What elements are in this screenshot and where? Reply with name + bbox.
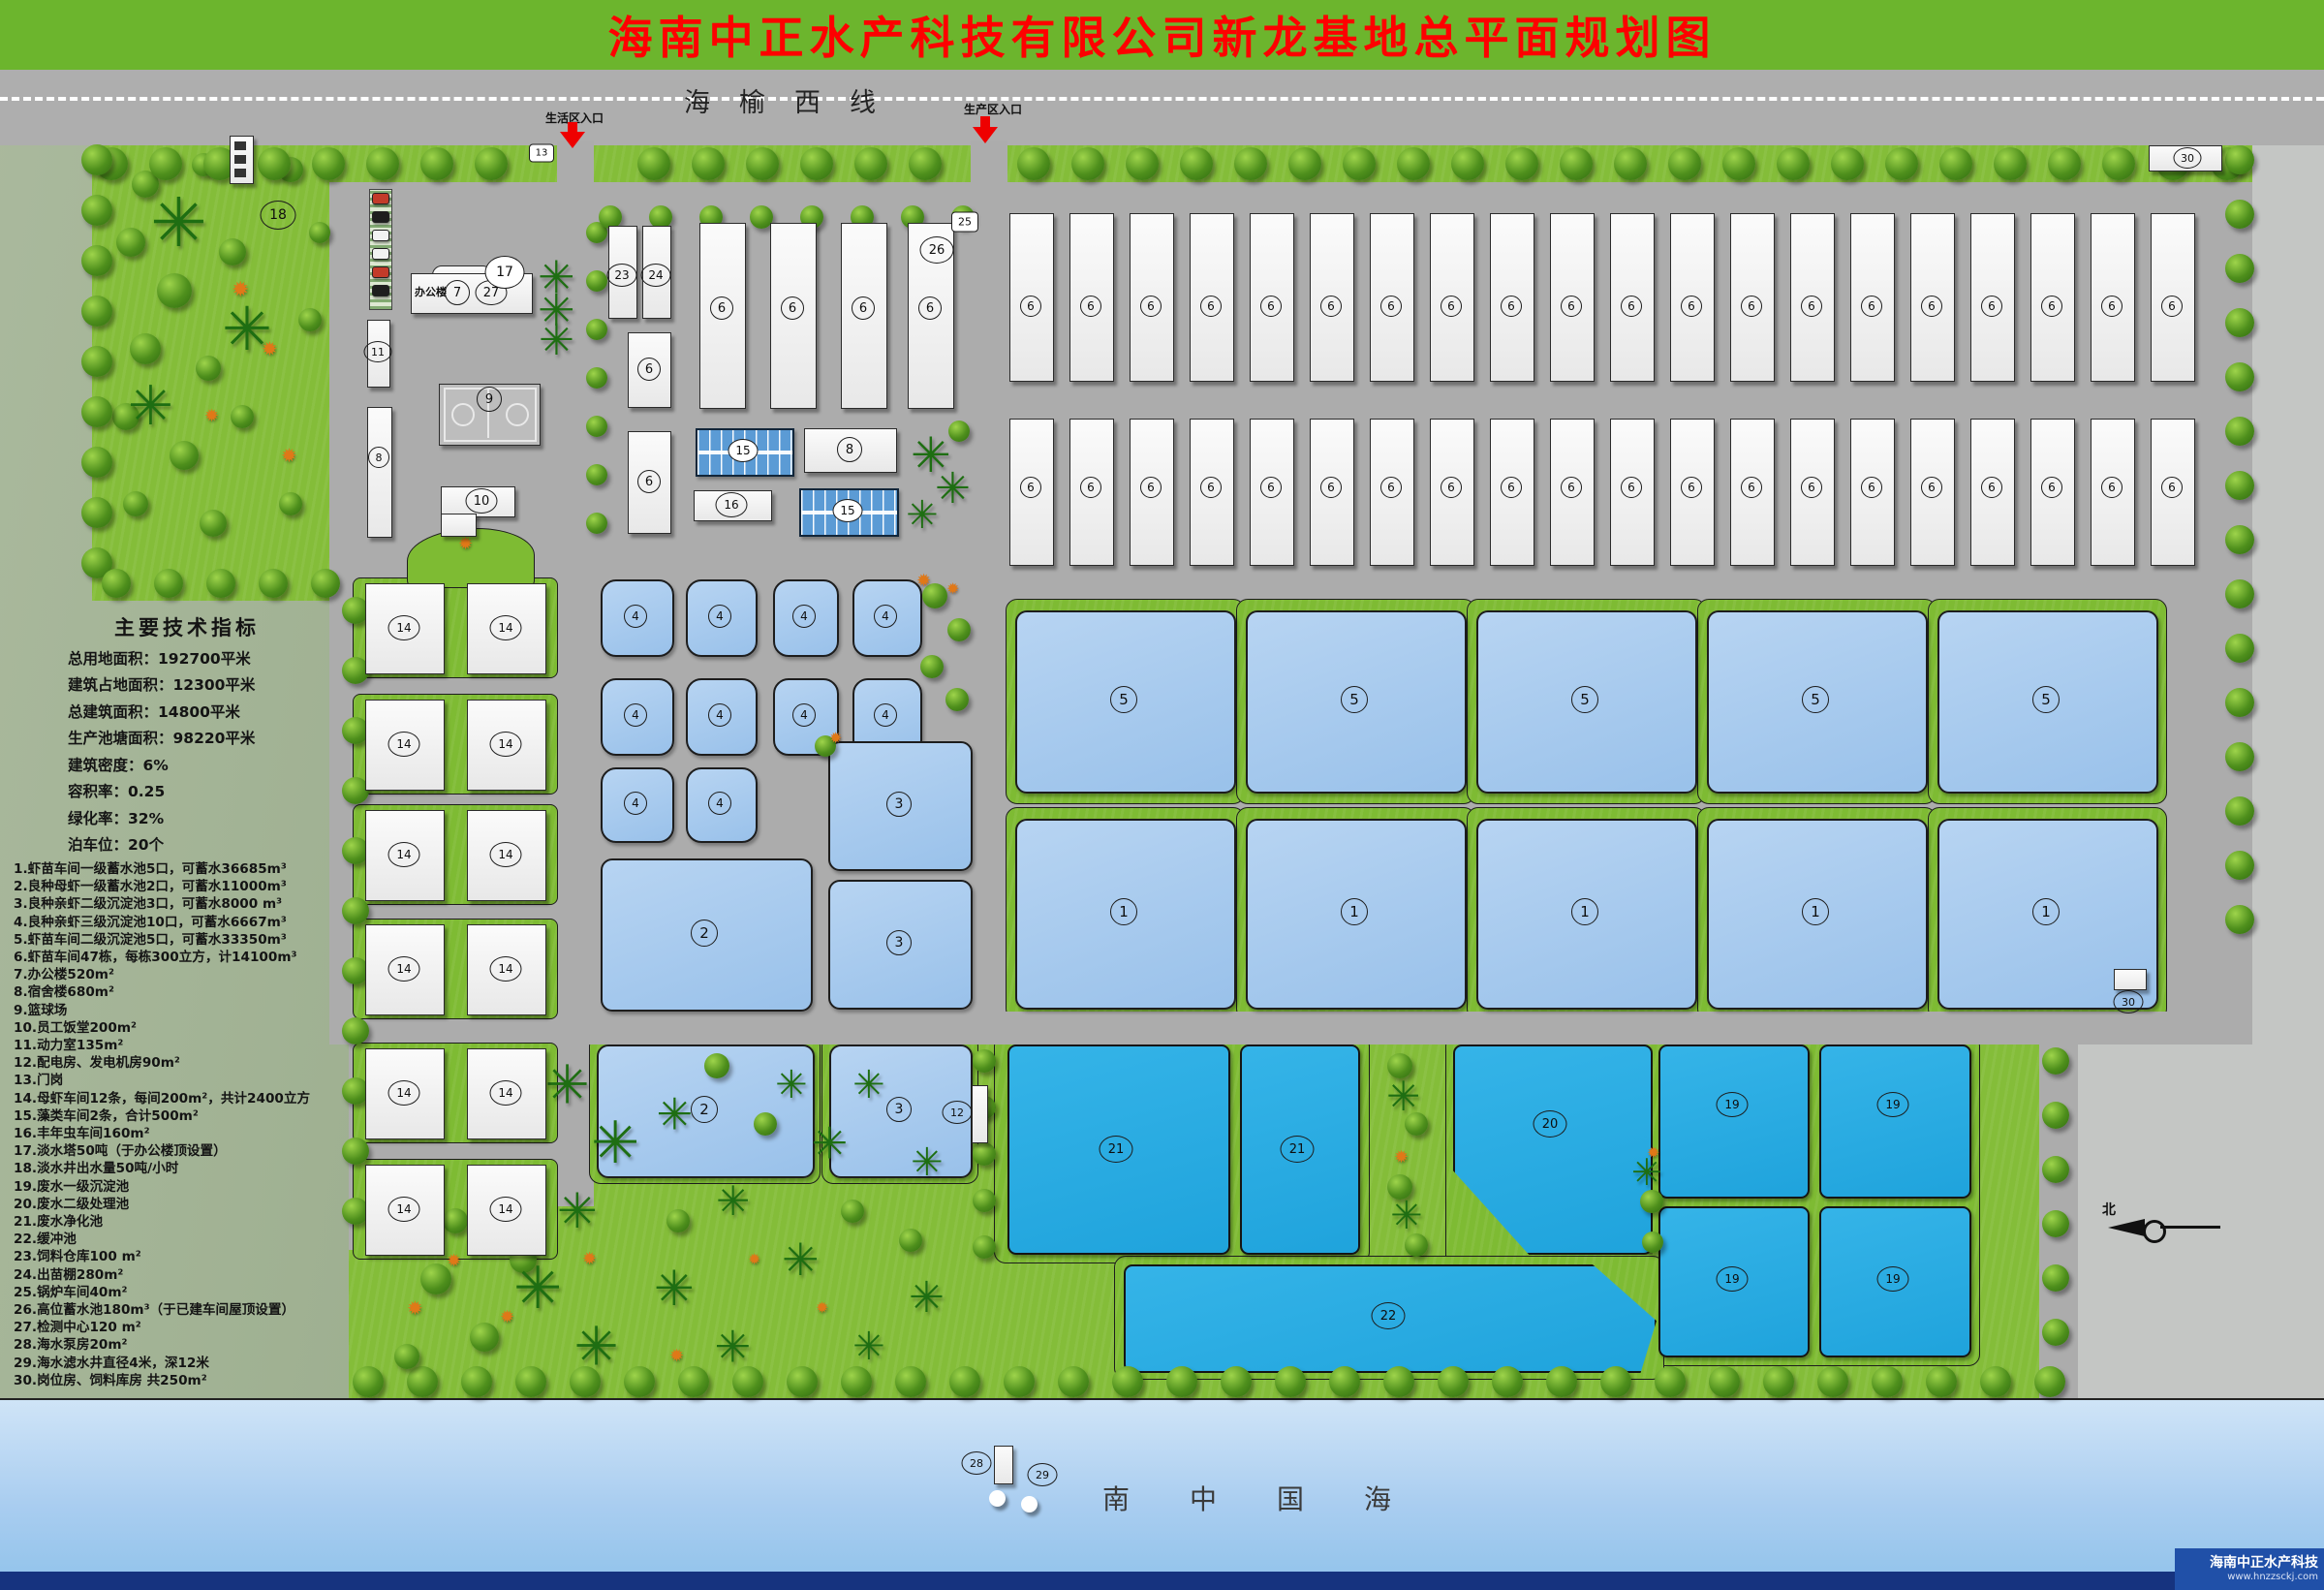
- indicator-line: 泊车位：20个: [68, 833, 387, 855]
- tree-icon: [1655, 1366, 1686, 1397]
- marker-30: 30: [2174, 147, 2202, 169]
- entrance-prod-road: [971, 140, 1007, 189]
- tree-icon: [1885, 147, 1918, 180]
- kiosk-slot-icon: [234, 141, 246, 150]
- legend-item: 12.配电房、发电机房90m²: [14, 1054, 362, 1072]
- flower-icon: ✹: [1647, 1145, 1662, 1161]
- plan-title: 海南中正水产科技有限公司新龙基地总平面规划图: [608, 3, 1717, 67]
- car-icon: [372, 266, 389, 278]
- marker-6: 6: [1320, 296, 1342, 317]
- marker-6: 6: [1200, 296, 1222, 317]
- marker-8: 8: [837, 437, 862, 462]
- tree-icon: [1505, 147, 1538, 180]
- tree-icon: [81, 447, 112, 478]
- palm-tree-icon: ✳: [782, 1237, 826, 1282]
- car-icon: [372, 285, 389, 296]
- marker-6: 6: [1380, 477, 1402, 498]
- tree-icon: [1817, 1366, 1848, 1397]
- flower-icon: ✹: [582, 1251, 600, 1268]
- marker-6: 6: [1741, 296, 1762, 317]
- marker-1: 1: [1802, 898, 1829, 925]
- marker-19: 19: [1717, 1092, 1749, 1117]
- tree-icon: [624, 1366, 655, 1397]
- marker-6: 6: [1020, 477, 1041, 498]
- flower-icon: ✹: [669, 1348, 687, 1365]
- flower-icon: ✹: [232, 280, 253, 301]
- legend-item: 16.丰年虫车间160m²: [14, 1125, 362, 1142]
- logo-box: 海南中正水产科技 www.hnzzsckj.com: [2175, 1548, 2324, 1590]
- canteen-building-10b: [441, 514, 477, 537]
- tree-icon: [2042, 1210, 2069, 1237]
- legend-item: 7.办公楼520m²: [14, 966, 362, 983]
- marker-6: 6: [1080, 296, 1101, 317]
- palm-tree-icon: ✳: [909, 1277, 951, 1320]
- tree-icon: [895, 1366, 926, 1397]
- marker-6: 6: [1861, 296, 1882, 317]
- tree-icon: [586, 464, 607, 485]
- flower-icon: ✹: [407, 1298, 426, 1318]
- office-building-label: 办公楼: [415, 284, 447, 299]
- tree-icon: [2225, 851, 2254, 880]
- compass-ring-icon: [2143, 1220, 2166, 1243]
- tree-icon: [1397, 147, 1430, 180]
- legend-item: 10.员工饭堂200m²: [14, 1019, 362, 1037]
- logo-company-name: 海南中正水产科技: [2210, 1555, 2318, 1572]
- palm-tree-icon: ✳: [128, 380, 182, 434]
- flower-icon: ✹: [447, 1253, 464, 1270]
- marker-6: 6: [1260, 477, 1282, 498]
- kiosk-slot-icon: [234, 169, 246, 177]
- palm-tree-icon: ✳: [654, 1264, 702, 1313]
- court-circle-left: [451, 403, 475, 426]
- marker-6: 6: [1801, 477, 1822, 498]
- marker-8: 8: [368, 447, 389, 468]
- palm-tree-icon: ✳: [715, 1325, 759, 1369]
- legend-item: 30.岗位房、饲料库房 共250m²: [14, 1372, 362, 1389]
- marker-2: 2: [691, 920, 718, 947]
- legend-item: 15.藻类车间2条，合计500m²: [14, 1107, 362, 1125]
- road-horizontal-south: [581, 1012, 2252, 1044]
- marker-11: 11: [364, 341, 392, 362]
- marker-4: 4: [708, 792, 731, 815]
- tree-icon: [81, 346, 112, 377]
- tree-icon: [2225, 525, 2254, 554]
- marker-6: 6: [1921, 477, 1942, 498]
- marker-7: 7: [445, 280, 470, 305]
- tree-icon: [1126, 147, 1159, 180]
- tree-icon: [1112, 1366, 1143, 1397]
- legend-item: 5.虾苗车间二级沉淀池5口，可蓄水33350m³: [14, 931, 362, 949]
- highway-name: 海榆西线: [684, 81, 905, 119]
- marker-6: 6: [710, 296, 733, 320]
- entrance-prod-arrowhead-icon: [973, 127, 998, 143]
- tree-icon: [1004, 1366, 1035, 1397]
- tree-icon: [1071, 147, 1104, 180]
- marker-6: 6: [2101, 477, 2123, 498]
- tree-icon: [2225, 308, 2254, 337]
- tree-icon: [2225, 579, 2254, 608]
- marker-6: 6: [2041, 296, 2062, 317]
- tree-icon: [787, 1366, 818, 1397]
- compass-tail-icon: [2160, 1226, 2220, 1229]
- tree-icon: [130, 333, 161, 364]
- marker-1: 1: [1341, 898, 1368, 925]
- tree-icon: [81, 296, 112, 327]
- marker-6: 6: [781, 296, 804, 320]
- marker-6: 6: [1561, 477, 1582, 498]
- tree-icon: [470, 1323, 499, 1352]
- marker-14: 14: [490, 1080, 522, 1106]
- palm-tree-icon: ✳: [852, 1066, 891, 1105]
- tree-icon: [1221, 1366, 1252, 1397]
- marker-6: 6: [1681, 477, 1702, 498]
- tree-icon: [2225, 145, 2254, 174]
- marker-6: 6: [1981, 296, 2002, 317]
- tree-icon: [1642, 1231, 1663, 1253]
- marker-15: 15: [728, 439, 759, 462]
- marker-18: 18: [261, 201, 296, 230]
- filter-well-icon: [989, 1490, 1006, 1507]
- tree-icon: [1451, 147, 1484, 180]
- tree-icon: [2225, 254, 2254, 283]
- legend-item: 28.海水泵房20m²: [14, 1336, 362, 1354]
- marker-3: 3: [886, 792, 912, 817]
- legend-item: 18.淡水井出水量50吨/小时: [14, 1160, 362, 1177]
- car-icon: [372, 230, 389, 241]
- tree-icon: [2225, 417, 2254, 446]
- marker-6: 6: [2041, 477, 2062, 498]
- tree-icon: [1343, 147, 1376, 180]
- marker-6: 6: [1681, 296, 1702, 317]
- kiosk-slot-icon: [234, 155, 246, 164]
- marker-6: 6: [2101, 296, 2123, 317]
- tree-icon: [1275, 1366, 1306, 1397]
- marker-13: 13: [529, 144, 554, 163]
- marker-22: 22: [1372, 1302, 1406, 1329]
- tree-icon: [586, 367, 607, 389]
- marker-14: 14: [388, 842, 420, 867]
- sea-pump-house-28: [994, 1446, 1013, 1484]
- tree-icon: [1722, 147, 1755, 180]
- tree-icon: [259, 569, 288, 598]
- marker-6: 6: [1561, 296, 1582, 317]
- bottom-bar: [0, 1572, 2324, 1590]
- legend-item: 24.出苗棚280m²: [14, 1266, 362, 1284]
- tree-icon: [2102, 147, 2135, 180]
- car-icon: [372, 211, 389, 223]
- marker-4: 4: [708, 605, 731, 628]
- palm-tree-icon: ✳: [852, 1327, 891, 1366]
- tree-icon: [200, 510, 227, 537]
- tree-icon: [154, 569, 183, 598]
- tree-icon: [515, 1366, 546, 1397]
- flower-icon: ✹: [946, 581, 962, 597]
- marker-6: 6: [1200, 477, 1222, 498]
- palm-tree-icon: ✳: [557, 1187, 605, 1235]
- legend-item: 6.虾苗车间47栋，每栋300立方，计14100m³: [14, 949, 362, 966]
- indicator-line: 容积率：0.25: [68, 780, 387, 801]
- legend-item: 14.母虾车间12条，每间200m²，共计2400立方: [14, 1090, 362, 1107]
- legend-item: 26.高位蓄水池180m³（于已建车间屋顶设置）: [14, 1301, 362, 1319]
- tree-icon: [586, 513, 607, 534]
- flower-icon: ✹: [500, 1309, 517, 1326]
- marker-3: 3: [886, 1097, 912, 1122]
- tree-icon: [123, 491, 148, 516]
- legend-item: 20.废水二级处理池: [14, 1196, 362, 1213]
- marker-28: 28: [962, 1451, 992, 1475]
- tree-icon: [841, 1366, 872, 1397]
- marker-14: 14: [388, 956, 420, 982]
- marker-5: 5: [1110, 686, 1137, 713]
- tree-icon: [1600, 1366, 1631, 1397]
- marker-14: 14: [490, 732, 522, 757]
- flower-icon: ✹: [916, 573, 934, 590]
- legend-item: 27.检测中心120 m²: [14, 1319, 362, 1336]
- entrance-prod-label: 生产区入口: [964, 101, 1022, 117]
- tree-icon: [2042, 1047, 2069, 1075]
- marker-6: 6: [1861, 477, 1882, 498]
- marker-6: 6: [1501, 296, 1522, 317]
- tree-icon: [637, 147, 670, 180]
- tree-icon: [475, 147, 508, 180]
- tree-icon: [2225, 742, 2254, 771]
- tree-icon: [309, 222, 330, 243]
- flower-icon: ✹: [829, 731, 845, 746]
- indicator-line: 生产池塘面积：98220平米: [68, 727, 387, 748]
- marker-6: 6: [1501, 477, 1522, 498]
- legend-item: 22.缓冲池: [14, 1231, 362, 1248]
- marker-21: 21: [1281, 1136, 1315, 1163]
- marker-4: 4: [874, 605, 897, 628]
- marker-19: 19: [1877, 1092, 1909, 1117]
- sediment-pond-19a: [1658, 1044, 1810, 1199]
- marker-15: 15: [833, 499, 863, 522]
- palm-tree-icon: ✳: [716, 1181, 757, 1222]
- tree-icon: [1180, 147, 1213, 180]
- tree-icon: [206, 569, 235, 598]
- marker-23: 23: [607, 264, 637, 287]
- marker-14: 14: [388, 1197, 420, 1222]
- tree-icon: [2225, 471, 2254, 500]
- tree-icon: [754, 1112, 777, 1136]
- tree-icon: [854, 147, 887, 180]
- tree-icon: [1329, 1366, 1360, 1397]
- marker-20: 20: [1534, 1110, 1567, 1138]
- tree-icon: [2042, 1319, 2069, 1346]
- compass-needle-icon: [2108, 1219, 2145, 1236]
- tree-icon: [312, 147, 345, 180]
- tree-icon: [1234, 147, 1267, 180]
- compass-icon: 北: [2100, 1200, 2226, 1260]
- tree-icon: [1438, 1366, 1469, 1397]
- legend-item: 9.篮球场: [14, 1002, 362, 1019]
- indicators-lines: 总用地面积：192700平米建筑占地面积：12300平米总建筑面积：14800平…: [68, 647, 387, 856]
- marker-6: 6: [1741, 477, 1762, 498]
- marker-6: 6: [637, 470, 661, 493]
- court-circle-right: [506, 403, 529, 426]
- legend-item: 13.门岗: [14, 1072, 362, 1089]
- power-distribution-12: [972, 1085, 988, 1143]
- tree-icon: [81, 195, 112, 226]
- tree-icon: [461, 1366, 492, 1397]
- indicator-line: 总用地面积：192700平米: [68, 647, 387, 669]
- tree-icon: [311, 569, 340, 598]
- legend-item: 3.良种亲虾二级沉淀池3口，可蓄水8000 m³: [14, 895, 362, 913]
- marker-6: 6: [1801, 296, 1822, 317]
- tree-icon: [1058, 1366, 1089, 1397]
- tree-icon: [1668, 147, 1701, 180]
- marker-19: 19: [1877, 1266, 1909, 1292]
- tree-icon: [196, 356, 221, 381]
- tree-icon: [973, 1049, 996, 1073]
- legend-item: 21.废水净化池: [14, 1213, 362, 1231]
- tree-icon: [157, 273, 192, 308]
- marker-5: 5: [2032, 686, 2060, 713]
- tree-icon: [2225, 362, 2254, 391]
- sea-name: 南中国海: [1102, 1479, 1451, 1517]
- legend-item: 23.饲料仓库100 m²: [14, 1248, 362, 1265]
- tree-icon: [116, 228, 145, 257]
- site-plan-canvas: 海榆西线 海南中正水产科技有限公司新龙基地总平面规划图 生活区入口 生产区入口 …: [0, 0, 2324, 1590]
- marker-6: 6: [2161, 477, 2183, 498]
- legend-item: 19.废水一级沉淀池: [14, 1178, 362, 1196]
- tree-icon: [947, 618, 971, 641]
- marker-6: 6: [1080, 477, 1101, 498]
- shed-block-mid-road: [1006, 388, 2201, 413]
- legend-item: 8.宿舍楼680m²: [14, 983, 362, 1001]
- marker-4: 4: [792, 703, 816, 727]
- marker-5: 5: [1571, 686, 1598, 713]
- tree-icon: [279, 492, 302, 515]
- tree-icon: [149, 147, 182, 180]
- marker-6: 6: [1621, 296, 1642, 317]
- marker-14: 14: [490, 615, 522, 640]
- tree-icon: [2225, 905, 2254, 934]
- indicators-heading: 主要技术指标: [114, 612, 387, 641]
- tree-icon: [1560, 147, 1593, 180]
- marker-6: 6: [1921, 296, 1942, 317]
- tree-icon: [1831, 147, 1864, 180]
- tree-icon: [1939, 147, 1972, 180]
- marker-4: 4: [624, 703, 647, 727]
- tree-icon: [1709, 1366, 1740, 1397]
- tree-icon: [841, 1200, 864, 1223]
- tree-icon: [219, 238, 246, 265]
- marker-6: 6: [1020, 296, 1041, 317]
- filter-well-icon: [1021, 1496, 1038, 1512]
- tree-icon: [973, 1189, 996, 1212]
- tree-icon: [394, 1344, 419, 1369]
- tree-icon: [2034, 1366, 2065, 1397]
- marker-2: 2: [691, 1096, 718, 1123]
- palm-tree-icon: ✳: [513, 1260, 572, 1318]
- marker-19: 19: [1717, 1266, 1749, 1292]
- marker-6: 6: [918, 296, 942, 320]
- marker-3: 3: [886, 930, 912, 955]
- technical-indicators-panel: 主要技术指标 总用地面积：192700平米建筑占地面积：12300平米总建筑面积…: [68, 612, 387, 855]
- tree-icon: [678, 1366, 709, 1397]
- tree-icon: [366, 147, 399, 180]
- marker-6: 6: [1380, 296, 1402, 317]
- tree-icon: [2048, 147, 2081, 180]
- marker-5: 5: [1802, 686, 1829, 713]
- marker-29: 29: [1028, 1463, 1058, 1486]
- marker-1: 1: [2032, 898, 2060, 925]
- tree-icon: [2042, 1264, 2069, 1292]
- legend-item: 11.动力室135m²: [14, 1037, 362, 1054]
- tree-icon: [81, 497, 112, 528]
- marker-14: 14: [490, 1197, 522, 1222]
- marker-6: 6: [852, 296, 875, 320]
- tree-icon: [704, 1053, 729, 1078]
- tree-icon: [973, 1142, 996, 1166]
- tree-icon: [909, 147, 942, 180]
- tree-icon: [2225, 200, 2254, 229]
- marker-24: 24: [641, 264, 671, 287]
- legend-item: 29.海水滤水井直径4米，深12米: [14, 1355, 362, 1372]
- highway-center-dashed-line: [0, 97, 2324, 101]
- tree-icon: [2225, 796, 2254, 826]
- tree-icon: [1872, 1366, 1903, 1397]
- indicator-line: 建筑占地面积：12300平米: [68, 673, 387, 695]
- tree-icon: [1166, 1366, 1197, 1397]
- tree-icon: [2042, 1102, 2069, 1129]
- marker-10: 10: [466, 488, 498, 514]
- indicator-line: 建筑密度：6%: [68, 754, 387, 775]
- tree-icon: [420, 147, 453, 180]
- flower-icon: ✹: [1394, 1149, 1411, 1167]
- palm-tree-icon: ✳: [545, 1059, 599, 1112]
- car-icon: [372, 248, 389, 260]
- marker-14: 14: [388, 732, 420, 757]
- marker-26: 26: [920, 236, 954, 264]
- tree-icon: [170, 441, 199, 470]
- tree-icon: [1994, 147, 2027, 180]
- marker-30: 30: [2114, 990, 2144, 1013]
- tree-icon: [1546, 1366, 1577, 1397]
- indicator-line: 总建筑面积：14800平米: [68, 701, 387, 722]
- tree-icon: [1777, 147, 1810, 180]
- marker-6: 6: [1981, 477, 2002, 498]
- marker-14: 14: [388, 1080, 420, 1106]
- marker-4: 4: [624, 792, 647, 815]
- tree-icon: [899, 1229, 922, 1252]
- flower-icon: ✹: [458, 536, 476, 553]
- tree-icon: [800, 147, 833, 180]
- tree-icon: [586, 270, 607, 292]
- tree-icon: [298, 308, 322, 331]
- highway-road: [0, 70, 2324, 145]
- marker-6: 6: [1621, 477, 1642, 498]
- marker-4: 4: [708, 703, 731, 727]
- marker-5: 5: [1341, 686, 1368, 713]
- tree-icon: [973, 1235, 996, 1259]
- legend-item: 1.虾苗车间一级蓄水池5口，可蓄水36685m³: [14, 860, 362, 878]
- legend-item: 4.良种亲虾三级沉淀池10口，可蓄水6667m³: [14, 914, 362, 931]
- tree-icon: [2042, 1156, 2069, 1183]
- tree-icon: [1383, 1366, 1414, 1397]
- tree-icon: [945, 688, 969, 711]
- marker-1: 1: [1571, 898, 1598, 925]
- tree-icon: [746, 147, 779, 180]
- palm-tree-icon: ✳: [1390, 1197, 1429, 1235]
- flower-icon: ✹: [281, 446, 300, 465]
- tree-icon: [2225, 634, 2254, 663]
- tree-icon: [586, 416, 607, 437]
- tree-icon: [1614, 147, 1647, 180]
- tree-icon: [81, 245, 112, 276]
- palm-tree-icon: ✳: [911, 1143, 949, 1182]
